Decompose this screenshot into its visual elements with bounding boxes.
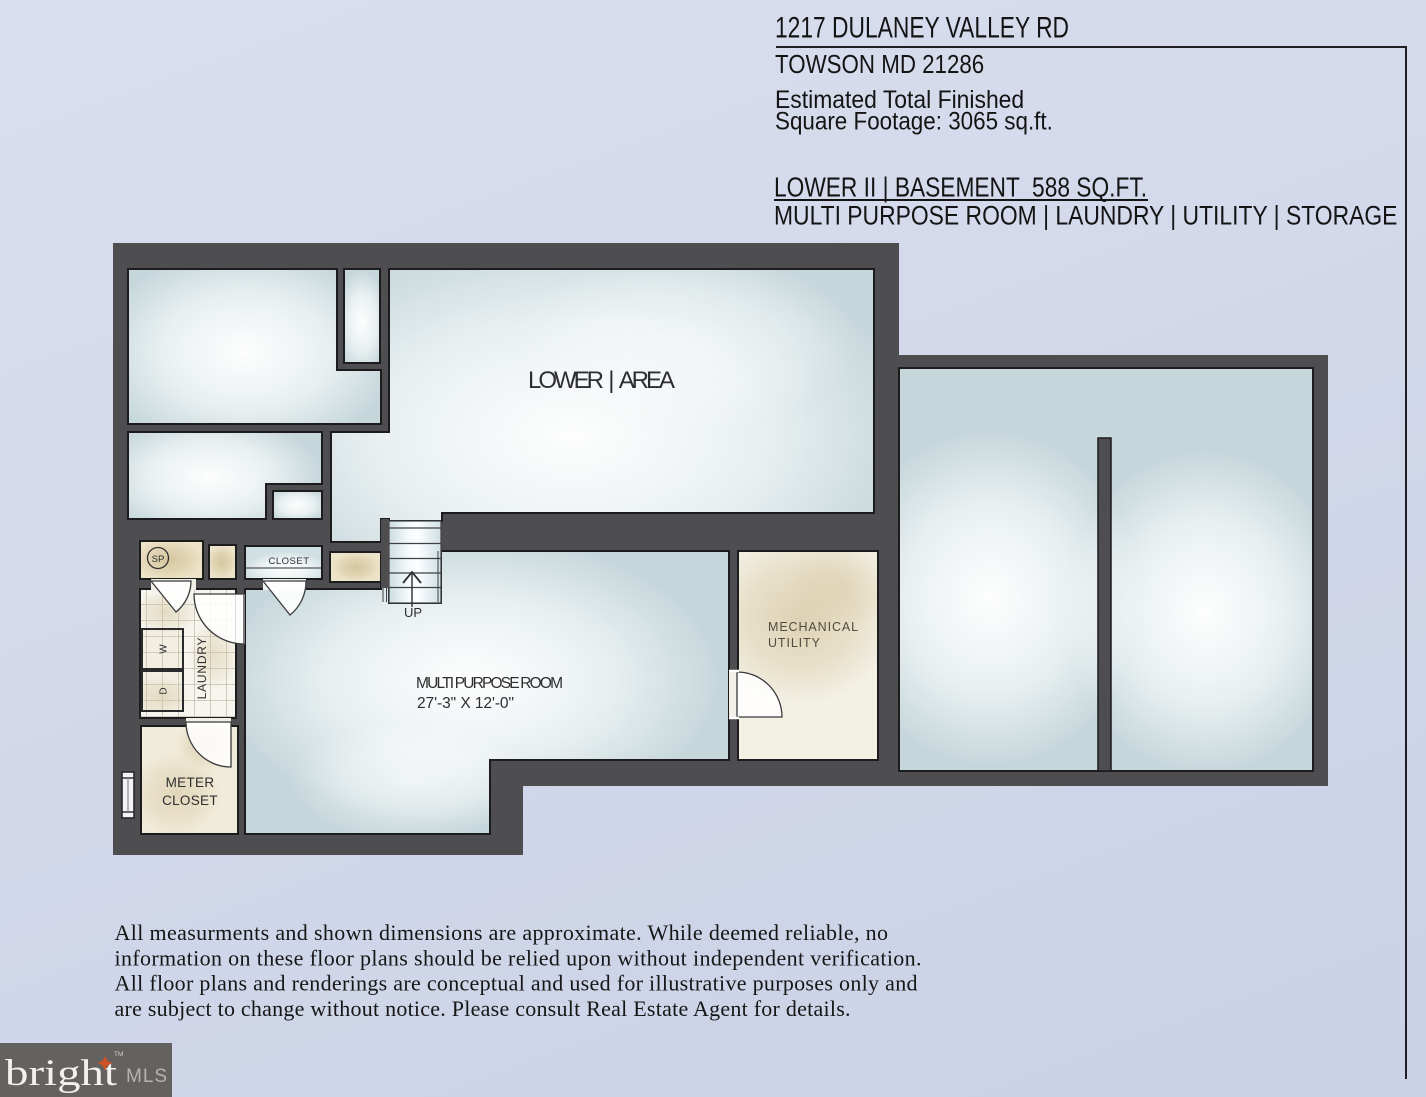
svg-text:SP: SP: [152, 554, 165, 565]
svg-text:are subject to change without: are subject to change without notice. Pl…: [115, 996, 851, 1021]
svg-text:UTILITY: UTILITY: [768, 636, 821, 650]
svg-text:CLOSET: CLOSET: [162, 793, 218, 808]
svg-text:MLS: MLS: [126, 1066, 168, 1087]
svg-text:METER: METER: [166, 775, 215, 790]
svg-text:LOWER | AREA: LOWER | AREA: [528, 367, 676, 394]
svg-text:TM: TM: [114, 1051, 123, 1058]
svg-text:MULTI PURPOSE ROOM | LAUNDRY |: MULTI PURPOSE ROOM | LAUNDRY | UTILITY |…: [774, 201, 1397, 231]
svg-text:CLOSET: CLOSET: [268, 556, 309, 567]
svg-text:LOWER II | BASEMENT 588 SQ.FT: LOWER II | BASEMENT 588 SQ.FT.: [774, 173, 1147, 203]
svg-text:All floor plans and renderings: All floor plans and renderings are conce…: [115, 971, 918, 996]
svg-text:Square Footage: 3065 sq.ft.: Square Footage: 3065 sq.ft.: [775, 108, 1053, 135]
svg-text:D: D: [159, 687, 170, 694]
svg-text:W: W: [159, 644, 170, 654]
svg-text:All measurments and shown dime: All measurments and shown dimensions are…: [115, 920, 889, 945]
svg-text:bright: bright: [5, 1053, 118, 1094]
svg-text:1217 DULANEY VALLEY RD: 1217 DULANEY VALLEY RD: [775, 11, 1069, 45]
svg-text:TOWSON MD 21286: TOWSON MD 21286: [775, 51, 984, 80]
svg-text:UP: UP: [404, 605, 422, 620]
svg-text:27'-3" X 12'-0": 27'-3" X 12'-0": [417, 695, 515, 712]
svg-text:MULTI PURPOSE ROOM: MULTI PURPOSE ROOM: [416, 675, 564, 692]
svg-text:MECHANICAL: MECHANICAL: [768, 620, 859, 634]
svg-text:information on these floor pla: information on these floor plans should …: [115, 945, 922, 970]
svg-text:LAUNDRY: LAUNDRY: [195, 637, 209, 700]
